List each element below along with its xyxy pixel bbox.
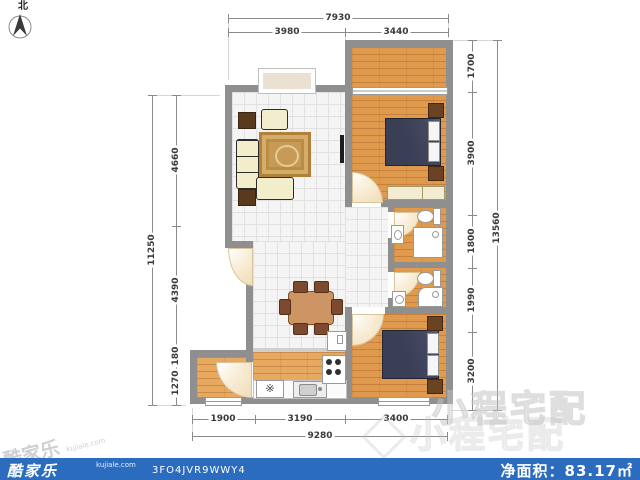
watermark-brand: 小程宅配 [432, 380, 588, 432]
dim-right-seg2: 3900 [467, 138, 477, 167]
dim-tick [493, 410, 502, 411]
burner [326, 369, 332, 375]
bedroom2-nightstand-bottom [427, 379, 443, 394]
dim-tick [468, 332, 477, 333]
watermark-corner-domain: kujiale.com [66, 436, 107, 453]
fridge [327, 331, 347, 351]
sink-basin [394, 230, 402, 240]
dim-right-seg1: 1700 [467, 51, 477, 80]
dim-tick [468, 40, 477, 41]
bathroom2-toilet-tank [433, 270, 441, 287]
dim-right-total: 13560 [492, 210, 502, 245]
bathroom1-sink [391, 225, 404, 244]
tv [340, 135, 344, 163]
balcony-window [352, 87, 448, 95]
sink-bowl [299, 384, 317, 396]
dim-tick [468, 410, 477, 411]
dim-left-total: 11250 [147, 232, 157, 267]
wardrobe-divider [422, 187, 423, 199]
dim-tick [172, 226, 181, 227]
side-table-top [238, 112, 256, 129]
kujiale-logo: 酷家乐 [7, 460, 58, 480]
dim-right-seg5: 3200 [467, 356, 477, 385]
dim-tick [148, 95, 157, 96]
armchair [261, 109, 288, 130]
bathroom1-shower [413, 227, 443, 258]
dim-tick [228, 14, 229, 23]
wall-bath-divider [394, 262, 446, 267]
dim-tick [345, 415, 346, 424]
entry-window [205, 397, 242, 406]
dim-tick [448, 28, 449, 37]
burner [335, 359, 341, 365]
dim-tick [468, 268, 477, 269]
dim-top-seg2: 3440 [381, 27, 410, 37]
dining-chair [293, 323, 308, 335]
side-table-bottom [238, 189, 256, 206]
dim-left-seg4: 1270 [171, 368, 181, 397]
balcony-floor [352, 47, 446, 90]
dim-line-top-segments [228, 32, 448, 33]
drain-symbol: ※ [265, 382, 274, 395]
net-area-label: 净面积：83.17㎡ [501, 460, 633, 480]
bedroom1-nightstand-bottom [428, 166, 444, 181]
fridge-handle [337, 335, 343, 344]
wall-hall-top [381, 200, 446, 207]
wall-left-upper [225, 85, 232, 248]
dim-tick [192, 432, 193, 441]
dim-line-right-segments [472, 40, 473, 410]
dim-bottom-seg1: 1900 [208, 414, 237, 424]
entry-main-door [228, 248, 253, 286]
bedroom2-window [378, 397, 430, 406]
extension-line [156, 405, 186, 406]
bay-window [258, 68, 316, 94]
dim-top-seg1: 3980 [272, 27, 301, 37]
dim-tick [172, 405, 181, 406]
dim-top-total: 7930 [323, 13, 352, 23]
compass: 北 [6, 2, 34, 44]
bedroom1-pillow-bottom [428, 142, 440, 162]
compass-icon [6, 12, 34, 40]
dim-tick [468, 92, 477, 93]
dim-tick [448, 14, 449, 23]
faucet [318, 387, 322, 391]
bedroom2-nightstand-top [427, 316, 443, 331]
north-label: 北 [12, 2, 34, 12]
burner [326, 359, 332, 365]
footer-bar: 酷家乐 kujiale.com 3FO4JVR9WWY4 净面积：83.17㎡ [0, 458, 640, 480]
dining-chair [293, 281, 308, 293]
dim-tick [447, 432, 448, 441]
extension-line [156, 95, 220, 96]
wall-entry-left [190, 350, 197, 404]
bedroom1-wardrobe [387, 186, 445, 200]
wall-balcony-top [345, 40, 453, 47]
dim-bottom-total: 9280 [305, 431, 334, 441]
dim-tick [172, 95, 181, 96]
wall-hall-bottom [385, 307, 453, 314]
floorplan-canvas: ※ 7930 3980 3440 1900 3190 3400 9280 112… [0, 0, 640, 480]
bedroom1-pillow-top [428, 121, 440, 141]
dim-tick [228, 28, 229, 37]
stove [322, 355, 346, 384]
bedroom2-pillow-bottom [427, 355, 439, 376]
dining-table [288, 291, 334, 325]
dim-bottom-seg2: 3190 [285, 414, 314, 424]
bathroom2-toilet-bowl [417, 272, 434, 285]
shower-drain [432, 291, 439, 298]
dim-tick [192, 415, 193, 424]
dining-chair [314, 281, 329, 293]
bedroom1-nightstand-top [428, 103, 444, 118]
wall-bedroom1-left [345, 40, 352, 207]
kujiale-domain: kujiale.com [96, 461, 136, 469]
loveseat [256, 177, 294, 200]
dim-tick [447, 415, 448, 424]
bathroom1-toilet-bowl [417, 210, 434, 223]
kitchen-drain-box: ※ [256, 380, 284, 398]
dining-chair [279, 299, 291, 315]
wall-entry-top [190, 350, 253, 357]
living-rug [259, 132, 311, 177]
bathroom2-shower [418, 287, 443, 307]
hallway-floor [345, 207, 388, 307]
dim-tick [468, 215, 477, 216]
dim-tick [148, 405, 157, 406]
dining-chair [331, 299, 343, 315]
bathroom2-sink [392, 291, 406, 307]
dim-tick [345, 28, 346, 37]
plan-code: 3FO4JVR9WWY4 [152, 465, 246, 476]
bedroom2-pillow-top [427, 333, 439, 354]
dim-tick [493, 40, 502, 41]
bay-window-glass [262, 72, 312, 90]
rug-medallion [275, 145, 299, 167]
dim-tick [255, 415, 256, 424]
dim-bottom-seg3: 3400 [381, 414, 410, 424]
dim-left-seg3: 180 [171, 345, 181, 368]
dim-right-seg3: 1800 [467, 226, 477, 255]
dim-left-seg1: 4660 [171, 145, 181, 174]
shower-drain [432, 231, 439, 238]
dim-left-seg2: 4390 [171, 275, 181, 304]
burner [335, 369, 341, 375]
sink-basin [395, 295, 404, 304]
bathroom1-toilet-tank [433, 208, 441, 225]
dim-right-seg4: 1990 [467, 285, 477, 314]
